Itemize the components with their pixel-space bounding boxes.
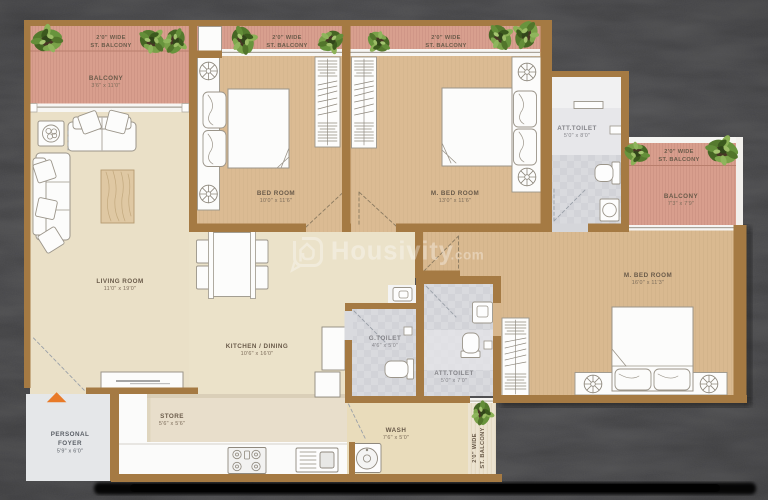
- svg-text:ST. BALCONY: ST. BALCONY: [266, 43, 307, 49]
- svg-text:2'0" WIDE: 2'0" WIDE: [96, 35, 126, 41]
- svg-text:2'0" WIDE: 2'0" WIDE: [472, 433, 478, 463]
- svg-text:2'0" WIDE: 2'0" WIDE: [272, 35, 302, 41]
- svg-text:11'0" x 19'0": 11'0" x 19'0": [104, 286, 136, 292]
- svg-text:10'0" x 11'6": 10'0" x 11'6": [260, 198, 292, 204]
- svg-text:PERSONAL: PERSONAL: [51, 431, 90, 438]
- svg-text:G.TOILET: G.TOILET: [369, 335, 402, 342]
- svg-text:10'6" x 16'0": 10'6" x 16'0": [241, 351, 274, 357]
- svg-text:7'6" x 5'0": 7'6" x 5'0": [383, 435, 409, 441]
- svg-text:M. BED ROOM: M. BED ROOM: [624, 272, 672, 279]
- svg-text:16'0" x 11'3": 16'0" x 11'3": [632, 280, 664, 286]
- svg-text:LIVING ROOM: LIVING ROOM: [96, 278, 143, 285]
- svg-text:WASH: WASH: [386, 427, 407, 434]
- svg-text:BALCONY: BALCONY: [664, 193, 699, 200]
- svg-text:ATT.TOILET: ATT.TOILET: [434, 370, 474, 377]
- svg-text:13'0" x 11'6": 13'0" x 11'6": [439, 198, 471, 204]
- svg-text:3'6" x 11'0": 3'6" x 11'0": [91, 83, 120, 89]
- svg-text:.com: .com: [451, 248, 485, 263]
- svg-text:ST. BALCONY: ST. BALCONY: [90, 43, 131, 49]
- svg-text:ATT.TOILET: ATT.TOILET: [557, 125, 597, 132]
- svg-text:2'0" WIDE: 2'0" WIDE: [431, 35, 461, 41]
- svg-text:BALCONY: BALCONY: [89, 75, 124, 82]
- svg-text:BED ROOM: BED ROOM: [257, 190, 295, 197]
- svg-text:4'6" x 5'0": 4'6" x 5'0": [372, 343, 398, 349]
- svg-text:Housivity: Housivity: [331, 238, 454, 266]
- svg-text:KITCHEN / DINING: KITCHEN / DINING: [226, 343, 288, 350]
- svg-text:2'0" WIDE: 2'0" WIDE: [664, 149, 694, 155]
- svg-text:M. BED ROOM: M. BED ROOM: [431, 190, 479, 197]
- svg-text:5'6" x 5'6": 5'6" x 5'6": [159, 421, 185, 427]
- svg-text:FOYER: FOYER: [58, 440, 82, 447]
- svg-text:STORE: STORE: [160, 413, 184, 420]
- svg-text:5'0" x 8'0": 5'0" x 8'0": [564, 133, 590, 139]
- svg-text:ST. BALCONY: ST. BALCONY: [658, 157, 699, 163]
- svg-text:ST. BALCONY: ST. BALCONY: [480, 427, 486, 468]
- svg-text:ST. BALCONY: ST. BALCONY: [425, 43, 466, 49]
- svg-text:5'9" x 6'0": 5'9" x 6'0": [57, 449, 83, 455]
- svg-text:5'0" x 7'0": 5'0" x 7'0": [441, 378, 467, 384]
- svg-text:7'3" x 7'9": 7'3" x 7'9": [668, 201, 694, 207]
